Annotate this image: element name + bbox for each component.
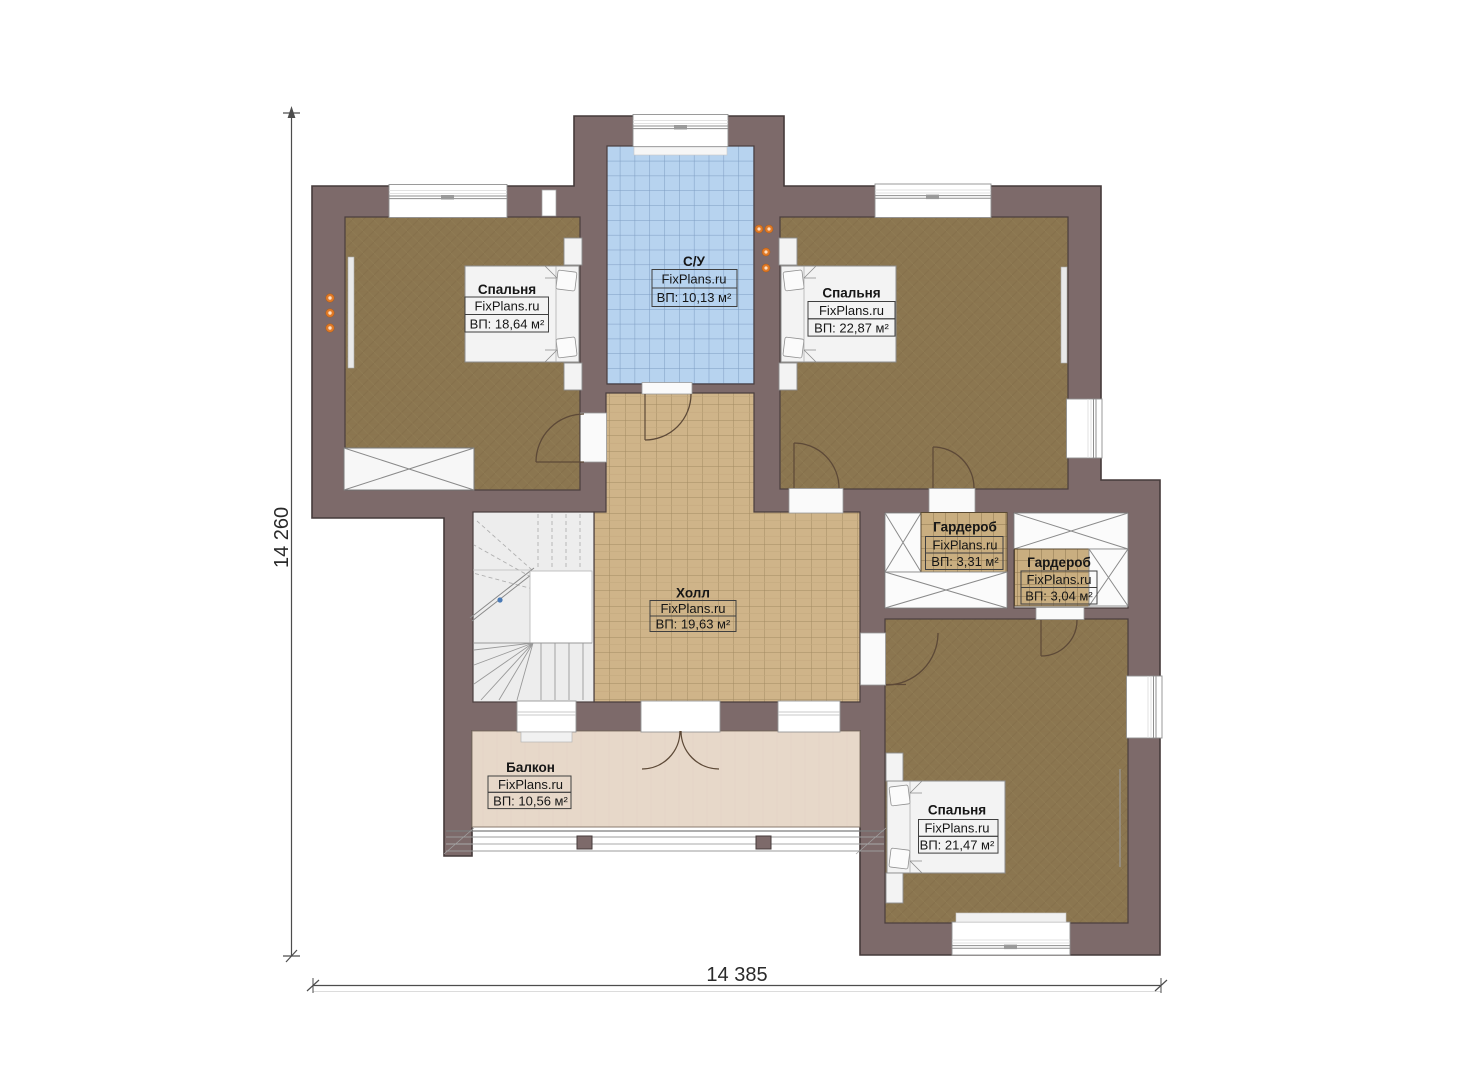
svg-text:ВП: 10,56 м²: ВП: 10,56 м² bbox=[493, 793, 568, 808]
svg-text:FixPlans.ru: FixPlans.ru bbox=[474, 299, 539, 314]
svg-text:FixPlans.ru: FixPlans.ru bbox=[932, 538, 997, 553]
svg-text:FixPlans.ru: FixPlans.ru bbox=[660, 601, 725, 616]
svg-text:FixPlans.ru: FixPlans.ru bbox=[819, 303, 884, 318]
svg-text:ВП: 22,87 м²: ВП: 22,87 м² bbox=[814, 320, 889, 335]
svg-text:FixPlans.ru: FixPlans.ru bbox=[661, 272, 726, 287]
svg-text:Балкон: Балкон bbox=[506, 760, 555, 775]
svg-text:Спальня: Спальня bbox=[478, 282, 536, 297]
svg-text:FixPlans.ru: FixPlans.ru bbox=[498, 777, 563, 792]
svg-text:ВП: 10,13 м²: ВП: 10,13 м² bbox=[657, 290, 732, 305]
svg-text:ВП: 18,64 м²: ВП: 18,64 м² bbox=[470, 317, 545, 332]
svg-text:Спальня: Спальня bbox=[822, 286, 880, 301]
svg-text:14 385: 14 385 bbox=[706, 964, 767, 986]
svg-text:ВП: 3,04 м²: ВП: 3,04 м² bbox=[1025, 589, 1093, 604]
svg-text:FixPlans.ru: FixPlans.ru bbox=[1026, 572, 1091, 587]
svg-text:ВП: 19,63 м²: ВП: 19,63 м² bbox=[656, 617, 731, 632]
svg-text:Гардероб: Гардероб bbox=[933, 520, 997, 535]
svg-text:ВП: 3,31 м²: ВП: 3,31 м² bbox=[931, 554, 999, 569]
svg-text:ВП: 21,47 м²: ВП: 21,47 м² bbox=[920, 838, 995, 853]
svg-text:Холл: Холл bbox=[676, 586, 710, 601]
svg-text:FixPlans.ru: FixPlans.ru bbox=[924, 821, 989, 836]
svg-text:Спальня: Спальня bbox=[928, 803, 986, 818]
svg-text:14 260: 14 260 bbox=[271, 507, 293, 568]
svg-text:Гардероб: Гардероб bbox=[1027, 555, 1091, 570]
svg-text:С/У: С/У bbox=[683, 254, 706, 269]
